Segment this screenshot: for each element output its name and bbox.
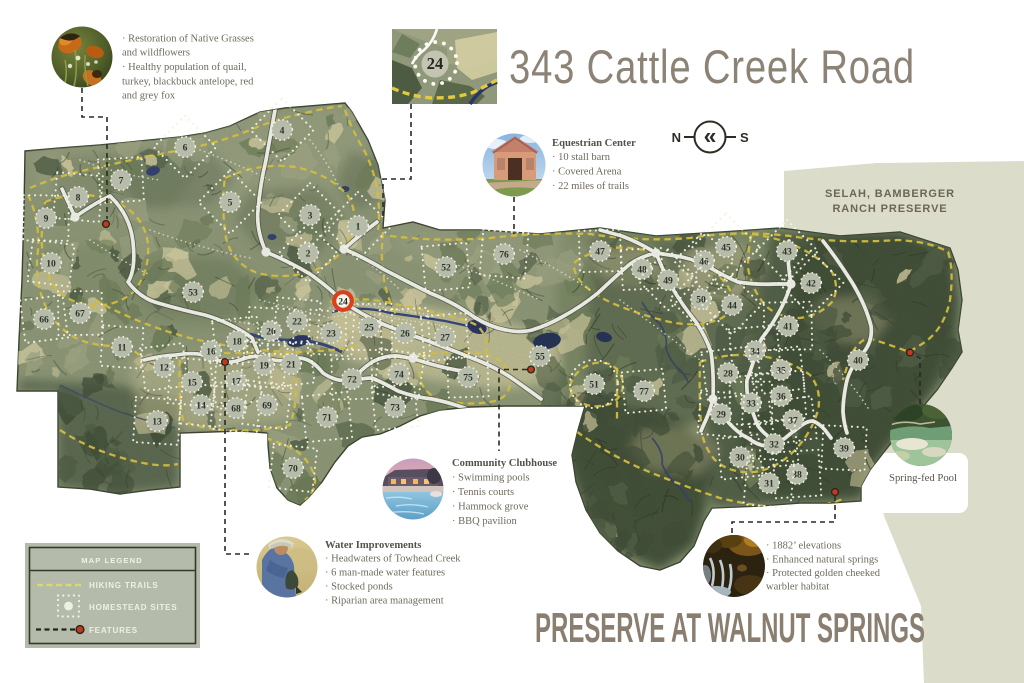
svg-text:39: 39 — [839, 444, 849, 455]
svg-text:SELAH, BAMBERGER: SELAH, BAMBERGER — [825, 188, 955, 200]
svg-text:· BBQ pavilion: · BBQ pavilion — [452, 516, 517, 527]
svg-text:24: 24 — [338, 297, 348, 308]
svg-text:49: 49 — [663, 276, 673, 287]
svg-text:· Covered Arena: · Covered Arena — [552, 167, 622, 178]
svg-text:· Headwaters of Towhead Creek: · Headwaters of Towhead Creek — [325, 554, 461, 565]
svg-text:6: 6 — [183, 143, 188, 154]
svg-text:74: 74 — [394, 370, 404, 381]
svg-text:· Healthy population of quail,: · Healthy population of quail, — [122, 62, 247, 73]
svg-text:16: 16 — [206, 347, 216, 358]
svg-text:2: 2 — [306, 249, 311, 260]
svg-text:27: 27 — [440, 333, 450, 344]
svg-text:· Enhanced natural springs: · Enhanced natural springs — [766, 555, 878, 566]
svg-text:5: 5 — [228, 198, 233, 209]
svg-text:· 22 miles of trails: · 22 miles of trails — [552, 181, 629, 192]
svg-text:11: 11 — [117, 343, 126, 354]
svg-text:N: N — [672, 130, 681, 145]
svg-text:warbler habitat: warbler habitat — [766, 582, 829, 593]
svg-text:55: 55 — [535, 352, 545, 363]
svg-text:76: 76 — [499, 250, 509, 261]
svg-text:26: 26 — [400, 329, 410, 340]
svg-text:FEATURES: FEATURES — [89, 626, 138, 635]
svg-text:30: 30 — [735, 453, 745, 464]
svg-text:43: 43 — [782, 247, 792, 258]
svg-text:7: 7 — [119, 176, 124, 187]
svg-text:S: S — [740, 130, 749, 145]
svg-text:343 Cattle Creek Road: 343 Cattle Creek Road — [509, 40, 915, 93]
svg-text:· Riparian area management: · Riparian area management — [325, 596, 444, 607]
svg-text:53: 53 — [188, 288, 198, 299]
svg-text:77: 77 — [639, 387, 649, 398]
svg-text:and grey fox: and grey fox — [122, 91, 176, 102]
svg-text:HOMESTEAD SITES: HOMESTEAD SITES — [89, 603, 177, 612]
svg-text:32: 32 — [769, 440, 779, 451]
svg-text:51: 51 — [589, 380, 599, 391]
svg-text:25: 25 — [364, 323, 374, 334]
svg-text:9: 9 — [44, 214, 49, 225]
svg-text:· 10 stall barn: · 10 stall barn — [552, 152, 611, 163]
svg-text:37: 37 — [788, 416, 798, 427]
svg-text:turkey, blackbuck antelope, re: turkey, blackbuck antelope, red — [122, 77, 254, 88]
svg-text:69: 69 — [262, 401, 272, 412]
svg-text:«: « — [704, 123, 717, 149]
svg-text:29: 29 — [716, 410, 726, 421]
svg-text:22: 22 — [292, 317, 302, 328]
svg-text:13: 13 — [152, 417, 162, 428]
svg-text:24: 24 — [427, 54, 444, 73]
svg-text:· Restoration of Native Grasse: · Restoration of Native Grasses — [122, 34, 254, 45]
svg-text:· Hammock grove: · Hammock grove — [452, 502, 529, 513]
svg-text:50: 50 — [696, 295, 706, 306]
svg-text:72: 72 — [347, 375, 357, 386]
svg-text:73: 73 — [390, 403, 400, 414]
svg-text:28: 28 — [723, 369, 733, 380]
svg-text:19: 19 — [259, 361, 269, 372]
svg-text:75: 75 — [463, 373, 473, 384]
svg-text:17: 17 — [231, 377, 241, 388]
svg-text:12: 12 — [159, 363, 169, 374]
svg-text:52: 52 — [441, 263, 451, 274]
svg-text:40: 40 — [853, 356, 863, 367]
svg-text:· Swimming pools: · Swimming pools — [452, 473, 530, 484]
svg-text:41: 41 — [783, 322, 793, 333]
svg-text:68: 68 — [231, 404, 241, 415]
svg-text:· 1882’ elevations: · 1882’ elevations — [766, 541, 841, 552]
svg-text:21: 21 — [286, 360, 296, 371]
svg-text:10: 10 — [46, 259, 56, 270]
svg-text:46: 46 — [699, 257, 709, 268]
svg-text:70: 70 — [288, 464, 298, 475]
svg-text:45: 45 — [721, 243, 731, 254]
svg-text:RANCH PRESERVE: RANCH PRESERVE — [832, 203, 947, 215]
svg-text:1: 1 — [356, 222, 361, 233]
svg-text:Spring-fed Pool: Spring-fed Pool — [889, 472, 957, 484]
svg-text:PRESERVE AT WALNUT SPRINGS: PRESERVE AT WALNUT SPRINGS — [535, 604, 925, 651]
svg-text:· 6 man-made water features: · 6 man-made water features — [325, 568, 445, 579]
svg-text:Community Clubhouse: Community Clubhouse — [452, 458, 557, 469]
svg-text:· Stocked ponds: · Stocked ponds — [325, 582, 393, 593]
svg-text:67: 67 — [75, 309, 85, 320]
svg-text:66: 66 — [39, 315, 49, 326]
svg-text:33: 33 — [746, 399, 756, 410]
svg-text:Water Improvements: Water Improvements — [325, 540, 421, 551]
svg-text:15: 15 — [187, 378, 197, 389]
svg-text:Equestrian Center: Equestrian Center — [552, 138, 636, 149]
svg-text:23: 23 — [326, 329, 336, 340]
svg-text:47: 47 — [595, 247, 605, 258]
svg-text:· Tennis courts: · Tennis courts — [452, 487, 514, 498]
svg-text:· Protected golden cheeked: · Protected golden cheeked — [766, 568, 881, 579]
svg-text:4: 4 — [280, 126, 285, 137]
svg-text:18: 18 — [232, 337, 242, 348]
svg-text:44: 44 — [727, 301, 737, 312]
svg-text:31: 31 — [764, 479, 774, 490]
svg-text:71: 71 — [322, 413, 332, 424]
svg-text:HIKING TRAILS: HIKING TRAILS — [89, 581, 159, 590]
svg-text:42: 42 — [806, 279, 816, 290]
svg-text:and wildflowers: and wildflowers — [122, 48, 190, 59]
svg-text:8: 8 — [76, 193, 81, 204]
svg-text:3: 3 — [308, 211, 313, 222]
svg-text:MAP LEGEND: MAP LEGEND — [81, 556, 143, 565]
